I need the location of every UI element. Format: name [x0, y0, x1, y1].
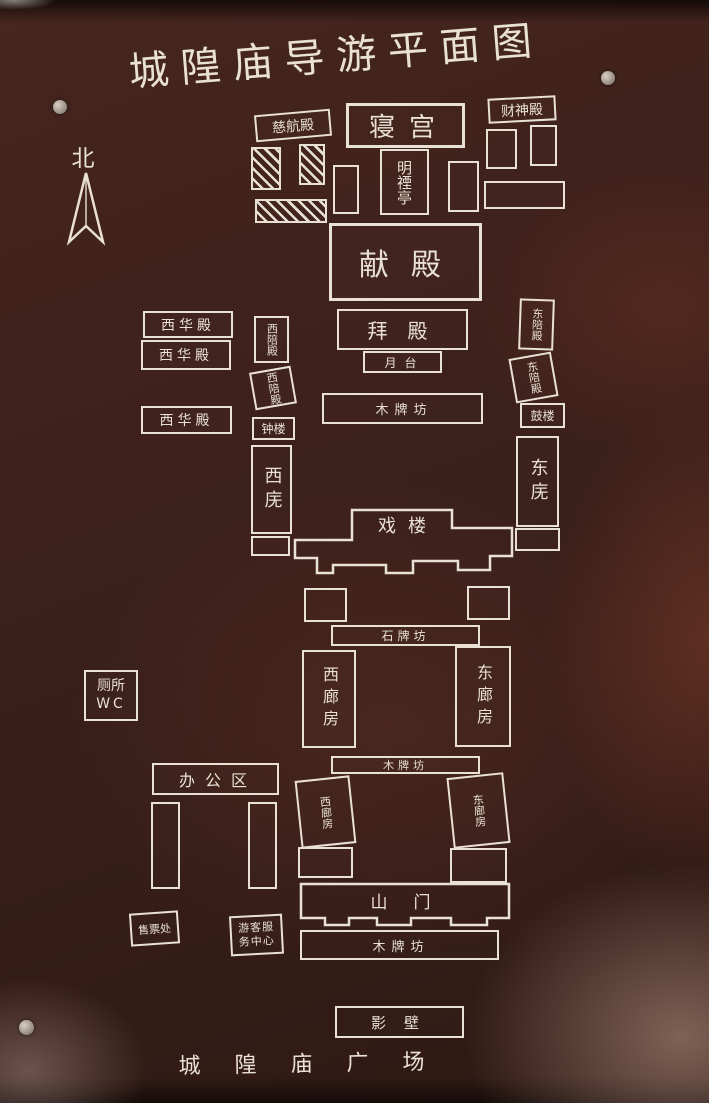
tower-gulou: 鼓楼 [520, 403, 565, 428]
cihangdian-annex-west [251, 147, 281, 190]
hall-xipeidian-1-text: 西陪殿 [264, 323, 280, 356]
rooms-donglangfang-text: 东廊房 [471, 664, 495, 730]
wing-dongwu-text: 东庑 [525, 458, 551, 506]
cihangdian-annex-east [299, 144, 325, 185]
toilet-wc-text: WC [96, 696, 126, 714]
visitor-center: 游客服务中心 [229, 914, 284, 957]
archway-mupaifang-1: 木牌坊 [322, 393, 483, 424]
hall-baidian-text: 拜殿 [358, 315, 448, 344]
visitor-center-text: 游客服务中心 [237, 920, 275, 950]
hall-xihuadian-2: 西华殿 [141, 340, 231, 370]
plaza-label: 城隍庙广场 [170, 1042, 451, 1083]
wing-xiwu: 西庑 [251, 445, 292, 534]
caishendian-annex-east [530, 125, 557, 166]
hall-xihuadian-3: 西华殿 [141, 406, 232, 434]
side-room-west-of-mingyinting [333, 165, 359, 214]
hall-xipeidian-2: 西陪殿 [249, 366, 297, 411]
wing-xiwu-annex [251, 536, 290, 556]
office-bangongqu-text: 办公区 [174, 767, 257, 791]
archway-mupaifang-2: 木牌坊 [331, 756, 480, 774]
tower-zhonglou: 钟楼 [252, 417, 295, 440]
block-west-of-shipaifang [304, 588, 347, 622]
caishendian-annex-west [486, 129, 517, 169]
rooms-donglangfang-small: 东廊房 [446, 772, 510, 849]
rooms-xilangfang-small: 西廊房 [295, 775, 357, 848]
annex-west-of-shanmen [298, 847, 353, 878]
wing-dongwu: 东庑 [516, 436, 559, 527]
wing-dongwu-annex [515, 528, 560, 551]
hall-dongpeidian-1: 东陪殿 [518, 298, 555, 350]
compass-north-label: 北 [62, 140, 104, 172]
hall-cihangdian-text: 慈航殿 [271, 114, 315, 138]
rooms-donglangfang-small-text: 东廊房 [469, 793, 488, 827]
block-east-of-shipaifang [467, 586, 510, 620]
tower-gulou-text: 鼓楼 [530, 407, 554, 424]
hall-xihuadian-1: 西华殿 [143, 311, 233, 338]
ticket-office-text: 售票处 [137, 919, 171, 937]
rooms-xilangfang-text: 西廊房 [317, 666, 341, 732]
toilet-wc: 厕所 WC [84, 670, 138, 721]
stage-xilou-label: 戏楼 [345, 512, 465, 538]
archway-mupaifang-3-text: 木牌坊 [369, 936, 429, 955]
screw-top-right [601, 71, 615, 85]
hall-caishendian-text: 财神殿 [501, 98, 544, 120]
office-bangongqu: 办公区 [152, 763, 279, 795]
toilet-cesuo-text: 厕所 [97, 678, 125, 696]
page-title: 城隍庙导游平面图 [86, 0, 580, 107]
hall-caishendian-label: 财神殿 [487, 95, 556, 124]
hall-dongpeidian-1-text: 东陪殿 [528, 308, 545, 342]
hall-xipeidian-1: 西陪殿 [254, 316, 289, 363]
hall-baidian: 拜殿 [337, 309, 468, 350]
office-column-west [151, 802, 180, 889]
screen-wall-yingbi: 影壁 [335, 1006, 464, 1038]
hall-cihangdian-label: 慈航殿 [254, 109, 332, 143]
side-room-east-of-mingyinting [448, 161, 479, 212]
ticket-office-shoupiaochu: 售票处 [129, 910, 180, 946]
hall-dongpeidian-2-text: 东陪殿 [523, 360, 544, 395]
tower-zhonglou-text: 钟楼 [261, 420, 285, 437]
archway-shipaifang-text: 石牌坊 [381, 627, 429, 644]
caishendian-annex-wide [484, 181, 565, 209]
terrace-yuetai: 月台 [363, 351, 442, 373]
hall-qingong-text: 寝宫 [362, 107, 449, 144]
screw-top-left [53, 100, 67, 114]
hall-xihuadian-3-text: 西华殿 [160, 410, 214, 430]
archway-mupaifang-3: 木牌坊 [300, 930, 499, 960]
hall-xihuadian-1-text: 西华殿 [161, 315, 215, 335]
temple-map-sign: 城隍庙导游平面图 北 慈航殿 寝宫 明禋亭 财神殿 献殿 西华殿 西华殿 西华殿… [0, 0, 709, 1103]
archway-mupaifang-2-text: 木牌坊 [383, 757, 428, 773]
gate-shanmen-label: 山门 [312, 887, 502, 913]
hall-qingong: 寝宫 [346, 103, 465, 148]
screw-bottom-left [19, 1020, 34, 1035]
cihangdian-annex-wide [255, 199, 327, 223]
compass-north-arrow-icon [56, 170, 116, 248]
terrace-yuetai-text: 月台 [380, 354, 424, 371]
screen-wall-yingbi-text: 影壁 [362, 1012, 437, 1033]
wing-xiwu-text: 西庑 [259, 466, 285, 514]
archway-mupaifang-1-text: 木牌坊 [372, 399, 432, 418]
rooms-xilangfang-small-text: 西廊房 [316, 795, 335, 829]
annex-east-of-shanmen [450, 848, 507, 883]
office-column-east [248, 802, 277, 889]
pavilion-mingyinting-text: 明禋亭 [394, 160, 415, 205]
hall-xiandian: 献殿 [329, 223, 482, 301]
pavilion-mingyinting: 明禋亭 [380, 149, 429, 215]
hall-xihuadian-2-text: 西华殿 [159, 345, 213, 365]
rooms-donglangfang: 东廊房 [455, 646, 511, 747]
hall-dongpeidian-2: 东陪殿 [508, 352, 558, 404]
hall-xiandian-text: 献殿 [348, 240, 463, 284]
rooms-xilangfang: 西廊房 [302, 650, 356, 748]
hall-xipeidian-2-text: 西陪殿 [262, 370, 283, 405]
archway-shipaifang: 石牌坊 [331, 625, 480, 646]
